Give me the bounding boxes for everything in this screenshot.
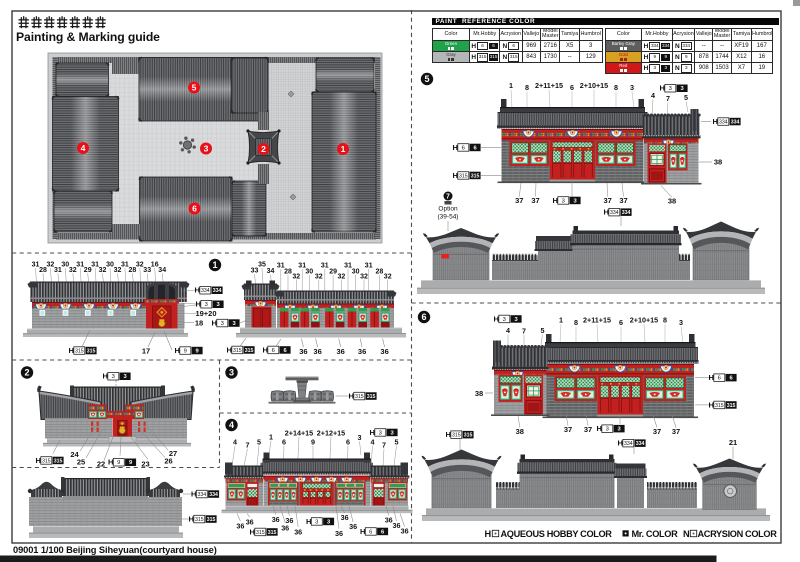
svg-text:H: H bbox=[596, 424, 601, 433]
svg-text:AQUEOUS HOBBY COLOR: AQUEOUS HOBBY COLOR bbox=[501, 529, 613, 539]
svg-text:2: 2 bbox=[24, 368, 29, 378]
svg-text:7: 7 bbox=[666, 94, 670, 103]
svg-text:33: 33 bbox=[251, 268, 259, 275]
svg-text:315: 315 bbox=[367, 394, 376, 400]
svg-text:1: 1 bbox=[212, 260, 217, 270]
svg-text:H: H bbox=[191, 489, 196, 498]
svg-text:3: 3 bbox=[503, 317, 506, 323]
svg-text:315: 315 bbox=[459, 173, 468, 179]
svg-text:H: H bbox=[493, 314, 498, 323]
svg-text:19+20: 19+20 bbox=[195, 309, 216, 318]
svg-text:25: 25 bbox=[77, 458, 85, 467]
svg-text:334: 334 bbox=[719, 120, 728, 126]
svg-text:2+10+15: 2+10+15 bbox=[580, 81, 608, 90]
svg-text:1: 1 bbox=[559, 316, 563, 325]
svg-text:H: H bbox=[102, 372, 107, 381]
svg-text:N: N bbox=[683, 529, 690, 539]
svg-text:34: 34 bbox=[158, 267, 166, 274]
svg-text:38: 38 bbox=[516, 427, 524, 436]
svg-text:H: H bbox=[226, 345, 231, 354]
svg-text:H: H bbox=[452, 143, 457, 152]
svg-text:37: 37 bbox=[619, 196, 627, 205]
svg-text:334: 334 bbox=[201, 288, 210, 294]
svg-text:ACRYSION COLOR: ACRYSION COLOR bbox=[698, 529, 778, 539]
svg-text:36: 36 bbox=[341, 513, 349, 522]
svg-text:31: 31 bbox=[321, 263, 329, 270]
svg-text:H: H bbox=[485, 529, 492, 539]
svg-text:1: 1 bbox=[269, 433, 273, 442]
svg-text:2+11+15: 2+11+15 bbox=[535, 81, 563, 90]
svg-text:4: 4 bbox=[229, 420, 234, 430]
svg-text:5: 5 bbox=[395, 438, 399, 447]
svg-text:315: 315 bbox=[256, 530, 265, 536]
svg-text:4: 4 bbox=[81, 143, 86, 153]
svg-text:36: 36 bbox=[299, 347, 307, 356]
svg-text:H: H bbox=[108, 458, 113, 467]
svg-text:H: H bbox=[174, 346, 179, 355]
svg-text:2+12+15: 2+12+15 bbox=[317, 429, 345, 438]
svg-text:7: 7 bbox=[522, 327, 526, 336]
svg-text:H: H bbox=[262, 345, 267, 354]
svg-text:6: 6 bbox=[272, 348, 275, 354]
svg-text:30: 30 bbox=[352, 269, 360, 276]
svg-text:36: 36 bbox=[272, 515, 280, 524]
svg-text:21: 21 bbox=[729, 438, 737, 447]
svg-text:36: 36 bbox=[385, 516, 393, 525]
svg-text:H: H bbox=[360, 527, 365, 536]
svg-text:315: 315 bbox=[207, 517, 216, 523]
svg-text:9: 9 bbox=[117, 460, 120, 466]
svg-text:2+11+15: 2+11+15 bbox=[583, 316, 611, 325]
svg-text:1: 1 bbox=[509, 81, 513, 90]
svg-text:315: 315 bbox=[727, 403, 736, 409]
svg-text:H: H bbox=[552, 196, 557, 205]
svg-text:6: 6 bbox=[619, 318, 623, 327]
svg-text:1: 1 bbox=[341, 144, 346, 154]
svg-text:36: 36 bbox=[358, 347, 366, 356]
svg-text:35: 35 bbox=[258, 262, 266, 269]
svg-text:7: 7 bbox=[382, 441, 386, 450]
svg-text:315: 315 bbox=[268, 530, 277, 536]
svg-text:334: 334 bbox=[731, 120, 740, 126]
svg-text:334: 334 bbox=[622, 210, 631, 216]
svg-text:315: 315 bbox=[464, 433, 473, 439]
svg-text:32: 32 bbox=[338, 273, 346, 280]
svg-text:H: H bbox=[659, 84, 664, 93]
svg-text:37: 37 bbox=[653, 427, 661, 436]
svg-text:31: 31 bbox=[365, 263, 373, 270]
svg-text:315: 315 bbox=[42, 458, 51, 464]
svg-text:8: 8 bbox=[663, 316, 667, 325]
svg-text:6: 6 bbox=[369, 529, 372, 535]
svg-text:32: 32 bbox=[292, 273, 300, 280]
svg-text:H: H bbox=[194, 286, 199, 295]
svg-text:3: 3 bbox=[358, 433, 362, 442]
svg-text:6: 6 bbox=[570, 83, 574, 92]
svg-text:H: H bbox=[445, 430, 450, 439]
svg-text:H: H bbox=[188, 514, 193, 523]
svg-text:28: 28 bbox=[376, 269, 384, 276]
svg-text:8: 8 bbox=[614, 83, 618, 92]
svg-text:3: 3 bbox=[669, 86, 672, 92]
svg-text:36: 36 bbox=[393, 521, 401, 530]
svg-text:2+10+15: 2+10+15 bbox=[630, 316, 658, 325]
svg-text:H: H bbox=[708, 400, 713, 409]
svg-text:37: 37 bbox=[604, 196, 612, 205]
svg-text:29: 29 bbox=[329, 269, 337, 276]
svg-text:30: 30 bbox=[305, 269, 313, 276]
svg-text:5: 5 bbox=[257, 438, 261, 447]
svg-text:37: 37 bbox=[564, 425, 572, 434]
svg-text:334: 334 bbox=[209, 492, 218, 498]
svg-text:32: 32 bbox=[384, 273, 392, 280]
svg-text:2+14+15: 2+14+15 bbox=[285, 429, 313, 438]
svg-text:36: 36 bbox=[337, 347, 345, 356]
svg-text:5: 5 bbox=[684, 93, 688, 102]
svg-text:H: H bbox=[68, 346, 73, 355]
svg-text:6: 6 bbox=[462, 145, 465, 151]
svg-text:27: 27 bbox=[169, 449, 177, 458]
svg-text:2: 2 bbox=[261, 144, 266, 154]
svg-text:36: 36 bbox=[281, 524, 289, 533]
svg-text:315: 315 bbox=[471, 173, 480, 179]
svg-text:36: 36 bbox=[335, 529, 343, 538]
svg-text:H: H bbox=[306, 517, 311, 526]
svg-text:315: 315 bbox=[452, 433, 461, 439]
svg-text:3: 3 bbox=[315, 519, 318, 525]
svg-text:28: 28 bbox=[284, 269, 292, 276]
svg-text:17: 17 bbox=[142, 347, 150, 356]
svg-text:37: 37 bbox=[584, 425, 592, 434]
svg-text:36: 36 bbox=[349, 522, 357, 531]
svg-text:9: 9 bbox=[311, 438, 315, 447]
svg-text:37: 37 bbox=[515, 196, 523, 205]
svg-text:32: 32 bbox=[360, 273, 368, 280]
svg-text:6: 6 bbox=[192, 204, 197, 214]
svg-text:334: 334 bbox=[636, 441, 645, 447]
svg-text:4: 4 bbox=[651, 91, 655, 100]
svg-text:36: 36 bbox=[313, 347, 321, 356]
svg-text:38: 38 bbox=[475, 389, 483, 398]
svg-text:3: 3 bbox=[562, 198, 565, 204]
svg-text:37: 37 bbox=[672, 427, 680, 436]
svg-text:315: 315 bbox=[355, 394, 364, 400]
svg-text:36: 36 bbox=[236, 522, 244, 531]
svg-text:5: 5 bbox=[541, 326, 545, 335]
svg-text:Option: Option bbox=[438, 206, 458, 213]
svg-text:3: 3 bbox=[630, 83, 634, 92]
svg-text:H: H bbox=[249, 527, 254, 536]
svg-text:334: 334 bbox=[610, 210, 619, 216]
svg-text:334: 334 bbox=[213, 288, 222, 294]
svg-text:H: H bbox=[348, 391, 353, 400]
svg-text:34: 34 bbox=[267, 268, 275, 275]
svg-text:9: 9 bbox=[184, 349, 187, 355]
svg-text:09001 1/100 Beijing Siheyuan(c: 09001 1/100 Beijing Siheyuan(courtyard h… bbox=[13, 545, 217, 555]
svg-text:8: 8 bbox=[525, 83, 529, 92]
svg-text:334: 334 bbox=[624, 441, 633, 447]
svg-text:315: 315 bbox=[233, 348, 242, 354]
svg-text:315: 315 bbox=[75, 349, 84, 355]
svg-text:315: 315 bbox=[245, 348, 254, 354]
svg-text:3: 3 bbox=[606, 427, 609, 433]
svg-text:36: 36 bbox=[380, 347, 388, 356]
svg-text:H: H bbox=[452, 171, 457, 180]
svg-text:H: H bbox=[712, 117, 717, 126]
svg-text:H: H bbox=[35, 456, 40, 465]
svg-text:4: 4 bbox=[371, 438, 375, 447]
svg-text:7: 7 bbox=[246, 441, 250, 450]
svg-text:6: 6 bbox=[346, 438, 350, 447]
svg-text:315: 315 bbox=[715, 403, 724, 409]
svg-text:6: 6 bbox=[421, 312, 426, 322]
svg-text:315: 315 bbox=[195, 517, 204, 523]
svg-text:3: 3 bbox=[379, 430, 382, 436]
svg-text:(39-54): (39-54) bbox=[438, 214, 459, 221]
svg-text:H: H bbox=[708, 373, 713, 382]
svg-text:4: 4 bbox=[233, 438, 237, 447]
svg-text:36: 36 bbox=[246, 518, 254, 527]
svg-text:38: 38 bbox=[668, 197, 676, 206]
svg-text:37: 37 bbox=[531, 196, 539, 205]
svg-text:334: 334 bbox=[197, 492, 206, 498]
svg-text:36: 36 bbox=[401, 527, 409, 536]
svg-text:3: 3 bbox=[205, 302, 208, 308]
svg-text:7: 7 bbox=[446, 194, 450, 201]
svg-text:22: 22 bbox=[97, 460, 105, 469]
svg-text:3: 3 bbox=[229, 368, 234, 378]
svg-text:3: 3 bbox=[112, 374, 115, 380]
svg-text:4: 4 bbox=[506, 326, 510, 335]
svg-text:H: H bbox=[369, 428, 374, 437]
svg-text:6: 6 bbox=[282, 438, 286, 447]
svg-text:32: 32 bbox=[315, 273, 323, 280]
svg-text:5: 5 bbox=[192, 83, 197, 93]
svg-text:H: H bbox=[211, 318, 216, 327]
svg-text:315: 315 bbox=[87, 349, 96, 355]
svg-text:3: 3 bbox=[679, 318, 683, 327]
svg-text:36: 36 bbox=[294, 527, 302, 536]
svg-text:H: H bbox=[603, 208, 608, 217]
svg-text:38: 38 bbox=[714, 158, 722, 167]
svg-text:H: H bbox=[195, 300, 200, 309]
svg-text:3: 3 bbox=[221, 321, 224, 327]
svg-text:6: 6 bbox=[718, 376, 721, 382]
svg-text:3: 3 bbox=[204, 144, 209, 154]
svg-text:315: 315 bbox=[54, 458, 63, 464]
svg-text:23: 23 bbox=[141, 460, 149, 469]
svg-text:Mr. COLOR: Mr. COLOR bbox=[632, 529, 679, 539]
svg-text:8: 8 bbox=[574, 318, 578, 327]
svg-text:H: H bbox=[617, 439, 622, 448]
svg-text:18: 18 bbox=[195, 319, 203, 328]
